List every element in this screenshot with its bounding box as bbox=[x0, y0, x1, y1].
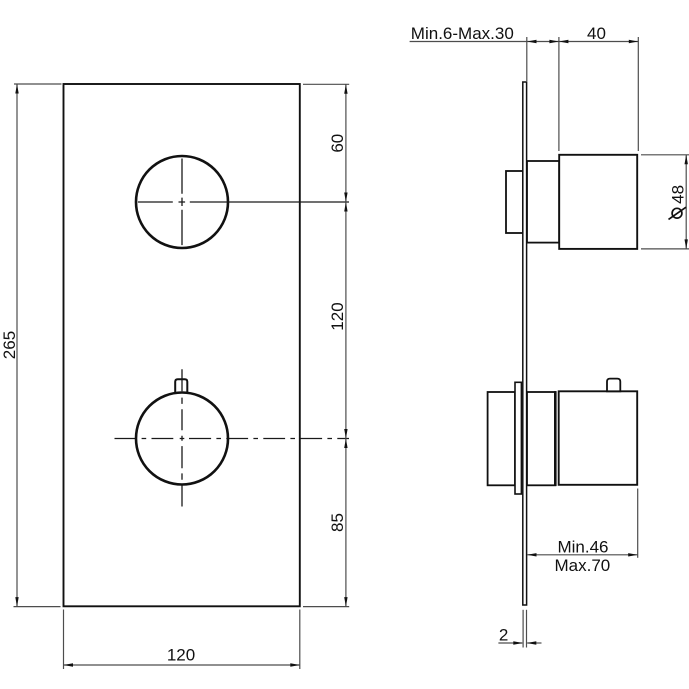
svg-text:120: 120 bbox=[328, 302, 347, 330]
svg-text:120: 120 bbox=[167, 646, 195, 665]
svg-text:2: 2 bbox=[499, 625, 508, 644]
svg-text:40: 40 bbox=[587, 24, 606, 43]
svg-text:Max.70: Max.70 bbox=[555, 556, 611, 575]
svg-text:48: 48 bbox=[669, 185, 688, 204]
svg-text:85: 85 bbox=[328, 513, 347, 532]
svg-text:265: 265 bbox=[0, 331, 19, 359]
svg-text:Min.46: Min.46 bbox=[557, 538, 608, 557]
svg-text:Min.6-Max.30: Min.6-Max.30 bbox=[411, 24, 514, 43]
svg-text:60: 60 bbox=[328, 134, 347, 153]
